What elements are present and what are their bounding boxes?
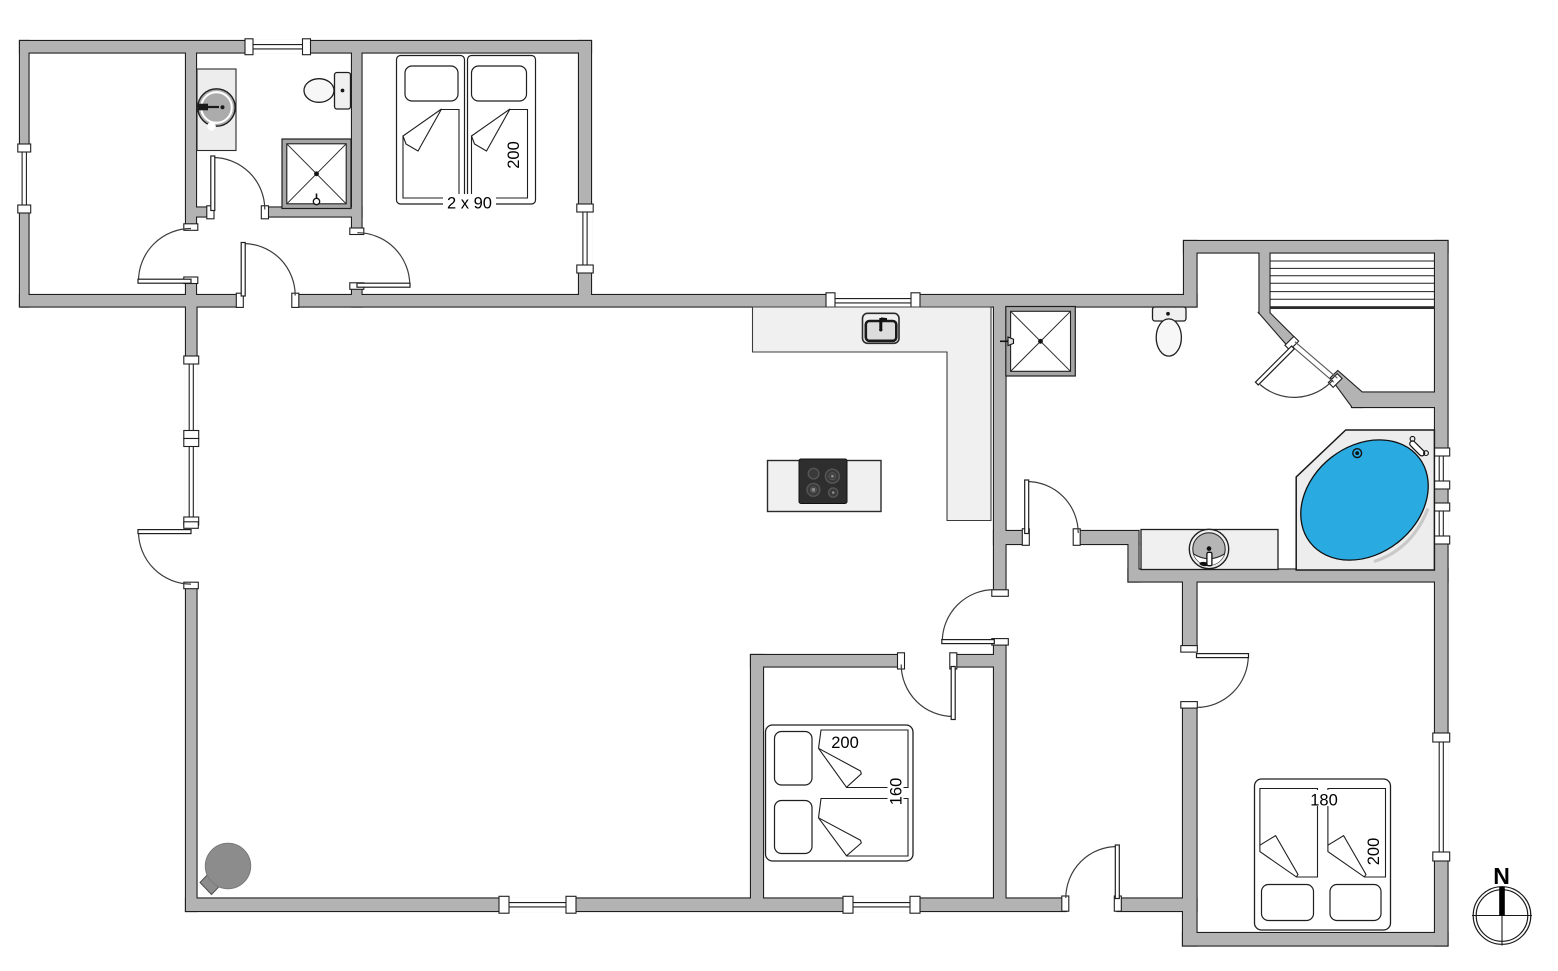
svg-text:160: 160 [888,778,906,806]
svg-text:N: N [1493,863,1510,889]
svg-text:180: 180 [1310,792,1338,810]
svg-text:200: 200 [505,141,523,169]
svg-text:200: 200 [1365,838,1383,866]
svg-text:2 x 90: 2 x 90 [447,195,492,213]
svg-text:200: 200 [831,734,859,752]
